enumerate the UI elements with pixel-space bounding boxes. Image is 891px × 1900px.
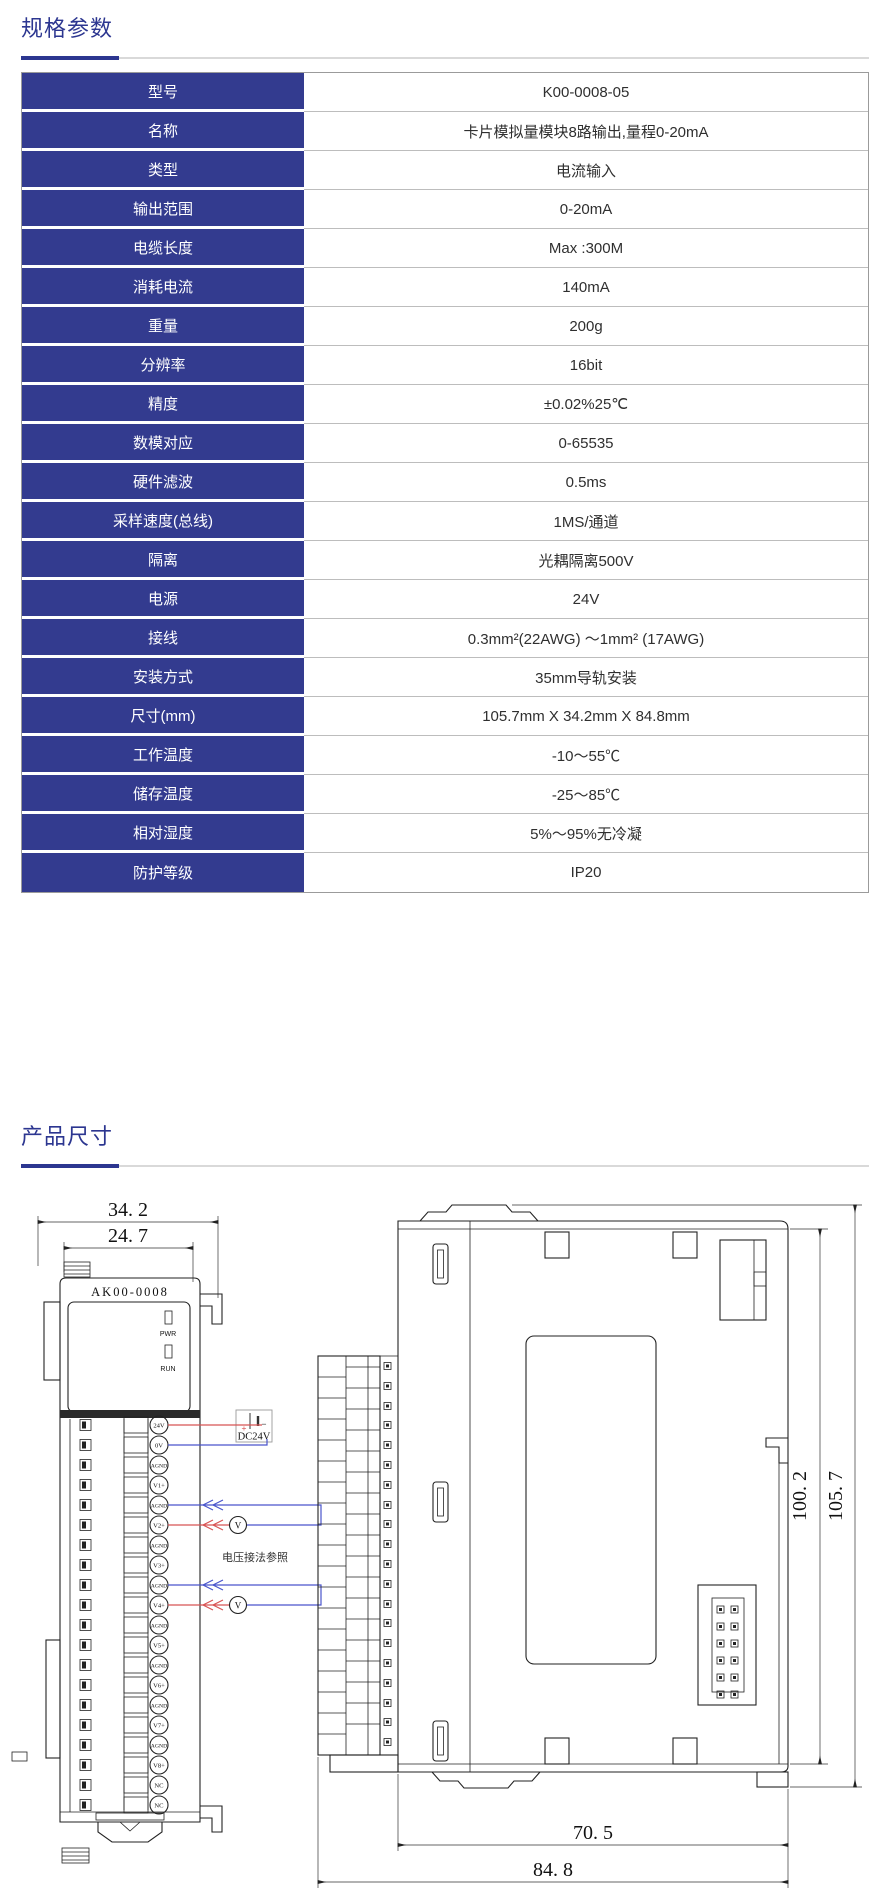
pwr-led-icon [165,1311,172,1324]
spec-label: 类型 [22,151,304,190]
specs-table: 型号K00-0008-05 名称卡片模拟量模块8路输出,量程0-20mA 类型电… [21,72,869,893]
spec-value: -10～55℃ [304,736,868,775]
spec-value: 电流输入 [304,151,868,190]
wiring-note: 电压接法参照 [222,1550,288,1564]
spec-value: 105.7mm X 34.2mm X 84.8mm [304,697,868,736]
side-depth-outer-dimension: 84. 8 [318,1757,788,1888]
spec-value: 0.3mm²(22AWG) ～1mm² (17AWG) [304,619,868,658]
terminal-label: V7+ [153,1723,165,1730]
spec-label: 隔离 [22,541,304,580]
spec-value: 0-65535 [304,424,868,463]
spec-value: ±0.02%25℃ [304,385,868,424]
spec-value: 0-20mA [304,190,868,229]
spec-row: 输出范围0-20mA [22,190,868,229]
terminal-label: AGND [151,1664,167,1670]
spec-row: 电缆长度Max :300M [22,229,868,268]
side-depth-inner-value: 70. 5 [573,1822,613,1844]
underline-accent [21,1164,119,1168]
spec-row: 电源24V [22,580,868,619]
spec-row: 精度±0.02%25℃ [22,385,868,424]
spec-label: 接线 [22,619,304,658]
side-body-outline [398,1205,788,1788]
underline-base [21,57,869,59]
spec-value: IP20 [304,853,868,892]
spec-value: 5%～95%无冷凝 [304,814,868,853]
spec-label: 精度 [22,385,304,424]
spec-value: 200g [304,307,868,346]
voltmeter-symbol: V [230,1517,247,1534]
dimensions-section: 产品尺寸 [21,893,869,1168]
spec-label: 输出范围 [22,190,304,229]
front-din-clip [62,1822,162,1863]
spec-row: 名称卡片模拟量模块8路输出,量程0-20mA [22,112,868,151]
spec-label: 分辨率 [22,346,304,385]
spec-label: 型号 [22,73,304,112]
positive-wires [168,1425,262,1610]
spec-value: -25～85℃ [304,775,868,814]
spec-row: 类型电流输入 [22,151,868,190]
spec-row: 硬件滤波0.5ms [22,463,868,502]
product-dimension-drawing: 34. 2 24. 7 AK0 [0,1190,891,1900]
side-height-inner-value: 100. 2 [789,1471,811,1521]
side-depth-inner-dimension: 70. 5 [398,1774,788,1888]
spec-value: 卡片模拟量模块8路输出,量程0-20mA [304,112,868,151]
terminal-label: V4+ [153,1603,165,1610]
run-led-label: RUN [160,1366,175,1373]
spec-value: 35mm导轨安装 [304,658,868,697]
terminal-label: AGND [151,1544,167,1550]
spec-row: 数模对应0-65535 [22,424,868,463]
front-width-inner-value: 24. 7 [108,1225,148,1247]
front-model-label: AK00-0008 [91,1285,169,1299]
spec-label: 相对湿度 [22,814,304,853]
side-height-outer-value: 105. 7 [825,1471,847,1521]
terminal-label: V5+ [153,1643,165,1650]
spec-value: 24V [304,580,868,619]
pwr-led-label: PWR [160,1331,176,1338]
spec-label: 消耗电流 [22,268,304,307]
terminal-label: AGND [151,1624,167,1630]
spec-label: 电源 [22,580,304,619]
underline-accent [21,56,119,60]
power-supply-symbol: + − DC24V [236,1410,272,1443]
front-module-outline: AK00-0008 PWR RUN [12,1262,222,1832]
supply-label: DC24V [238,1432,271,1443]
spec-label: 硬件滤波 [22,463,304,502]
dimensions-title-underline [21,1164,869,1168]
front-view-drawing: 34. 2 24. 7 AK0 [12,1199,321,1863]
spec-label: 数模对应 [22,424,304,463]
spec-row: 型号K00-0008-05 [22,73,868,112]
spec-label: 重量 [22,307,304,346]
side-label-recess [526,1336,656,1664]
dimensions-title: 产品尺寸 [21,1122,869,1152]
spec-label: 工作温度 [22,736,304,775]
side-terminal-block [318,1356,398,1772]
svg-text:V: V [235,1521,242,1531]
spec-label: 防护等级 [22,853,304,892]
underline-base [21,1165,869,1167]
spec-label: 储存温度 [22,775,304,814]
side-bus-connector [698,1585,756,1705]
specs-title: 规格参数 [21,14,869,44]
spec-label: 安装方式 [22,658,304,697]
spec-row: 工作温度-10～55℃ [22,736,868,775]
front-width-outer-dimension: 34. 2 [38,1199,218,1298]
spec-value: 光耦隔离500V [304,541,868,580]
spec-row: 消耗电流140mA [22,268,868,307]
spec-row: 重量200g [22,307,868,346]
spec-row: 接线0.3mm²(22AWG) ～1mm² (17AWG) [22,619,868,658]
spec-value: K00-0008-05 [304,73,868,112]
specs-section: 规格参数 型号K00-0008-05 名称卡片模拟量模块8路输出,量程0-20m… [21,0,869,893]
spec-label: 名称 [22,112,304,151]
spec-row: 防护等级IP20 [22,853,868,892]
spec-value: 1MS/通道 [304,502,868,541]
spec-value: 140mA [304,268,868,307]
spec-row: 安装方式35mm导轨安装 [22,658,868,697]
side-view-drawing: 100. 2 105. 7 70. 5 84. 8 [318,1205,862,1888]
terminal-label: V2+ [153,1523,165,1530]
terminal-label: NC [154,1783,164,1790]
datasheet-page: 规格参数 型号K00-0008-05 名称卡片模拟量模块8路输出,量程0-20m… [0,0,891,1900]
terminal-label: 24V [153,1423,165,1430]
spec-row: 储存温度-25～85℃ [22,775,868,814]
terminal-label: AGND [151,1744,167,1750]
front-width-outer-value: 34. 2 [108,1199,148,1221]
specs-title-underline [21,56,869,60]
terminal-label: V1+ [153,1483,165,1490]
spec-row: 隔离光耦隔离500V [22,541,868,580]
spec-row: 尺寸(mm)105.7mm X 34.2mm X 84.8mm [22,697,868,736]
terminal-label: V3+ [153,1563,165,1570]
terminal-label: AGND [151,1704,167,1710]
spec-label: 尺寸(mm) [22,697,304,736]
spec-value: Max :300M [304,229,868,268]
spec-row: 采样速度(总线)1MS/通道 [22,502,868,541]
terminal-label: AGND [151,1584,167,1590]
front-terminal-strip: 24V 0V AGND V1+ AGND V2+ AGND V3+ AGND V… [60,1416,200,1820]
spec-label: 采样速度(总线) [22,502,304,541]
front-width-inner-dimension: 24. 7 [64,1225,193,1282]
side-height-inner-dimension: 100. 2 [789,1229,828,1764]
terminal-label: NC [154,1803,164,1810]
spec-row: 分辨率16bit [22,346,868,385]
terminal-label: V6+ [153,1683,165,1690]
terminal-label: V8+ [153,1763,165,1770]
terminal-label: AGND [151,1504,167,1510]
spec-row: 相对湿度5%～95%无冷凝 [22,814,868,853]
terminal-label: AGND [151,1464,167,1470]
run-led-icon [165,1345,172,1358]
supply-minus-sign: − [262,1419,267,1429]
voltmeter-symbol: V [230,1597,247,1614]
side-depth-outer-value: 84. 8 [533,1859,573,1881]
negative-wires [168,1439,321,1605]
spec-label: 电缆长度 [22,229,304,268]
spec-value: 0.5ms [304,463,868,502]
svg-text:V: V [235,1601,242,1611]
terminal-label: 0V [155,1443,163,1450]
spec-value: 16bit [304,346,868,385]
